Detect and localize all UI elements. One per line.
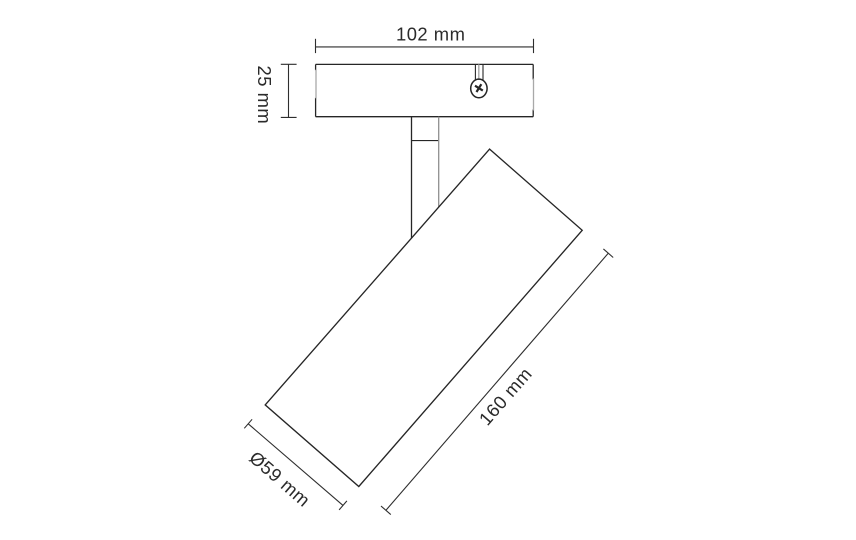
svg-text:102 mm: 102 mm [396,23,465,44]
svg-text:25 mm: 25 mm [254,66,275,125]
svg-text:Ø59 mm: Ø59 mm [245,447,314,511]
